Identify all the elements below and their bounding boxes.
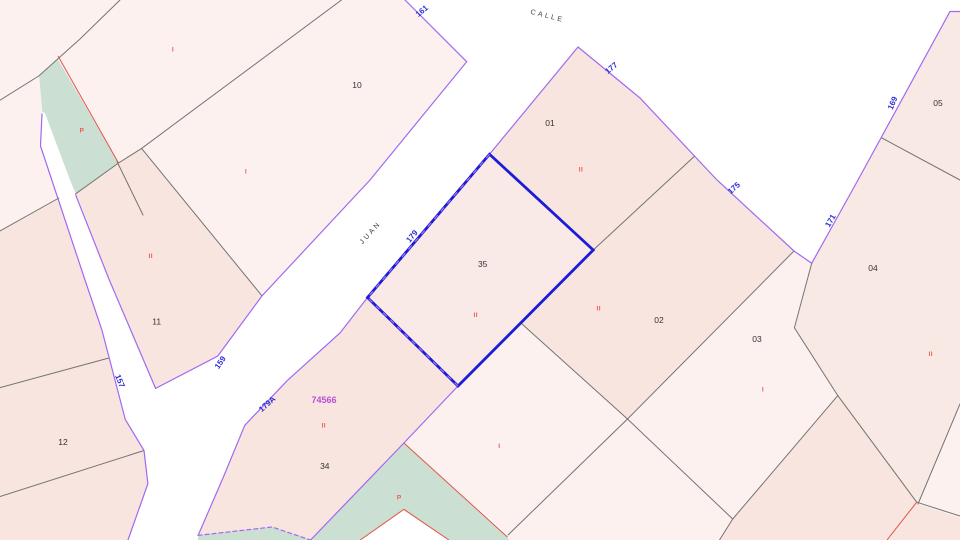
svg-text:11: 11 bbox=[152, 317, 161, 327]
svg-text:12: 12 bbox=[58, 437, 68, 447]
svg-text:03: 03 bbox=[752, 334, 762, 344]
svg-text:35: 35 bbox=[478, 259, 488, 269]
svg-text:I: I bbox=[498, 443, 500, 450]
svg-text:II: II bbox=[928, 351, 932, 358]
svg-text:I: I bbox=[172, 47, 174, 54]
svg-text:II: II bbox=[579, 167, 583, 174]
svg-text:II: II bbox=[596, 306, 600, 313]
svg-text:01: 01 bbox=[545, 118, 555, 128]
svg-text:05: 05 bbox=[933, 98, 943, 108]
svg-text:I: I bbox=[245, 169, 247, 176]
svg-text:02: 02 bbox=[654, 315, 664, 325]
svg-text:10: 10 bbox=[352, 80, 362, 90]
svg-text:II: II bbox=[473, 312, 477, 319]
svg-text:II: II bbox=[322, 423, 326, 430]
svg-text:II: II bbox=[148, 253, 152, 260]
svg-text:P: P bbox=[397, 495, 402, 502]
svg-text:P: P bbox=[80, 128, 85, 135]
svg-text:I: I bbox=[762, 387, 764, 394]
svg-text:74566: 74566 bbox=[312, 395, 337, 405]
svg-text:04: 04 bbox=[868, 263, 878, 273]
svg-text:34: 34 bbox=[320, 461, 330, 471]
